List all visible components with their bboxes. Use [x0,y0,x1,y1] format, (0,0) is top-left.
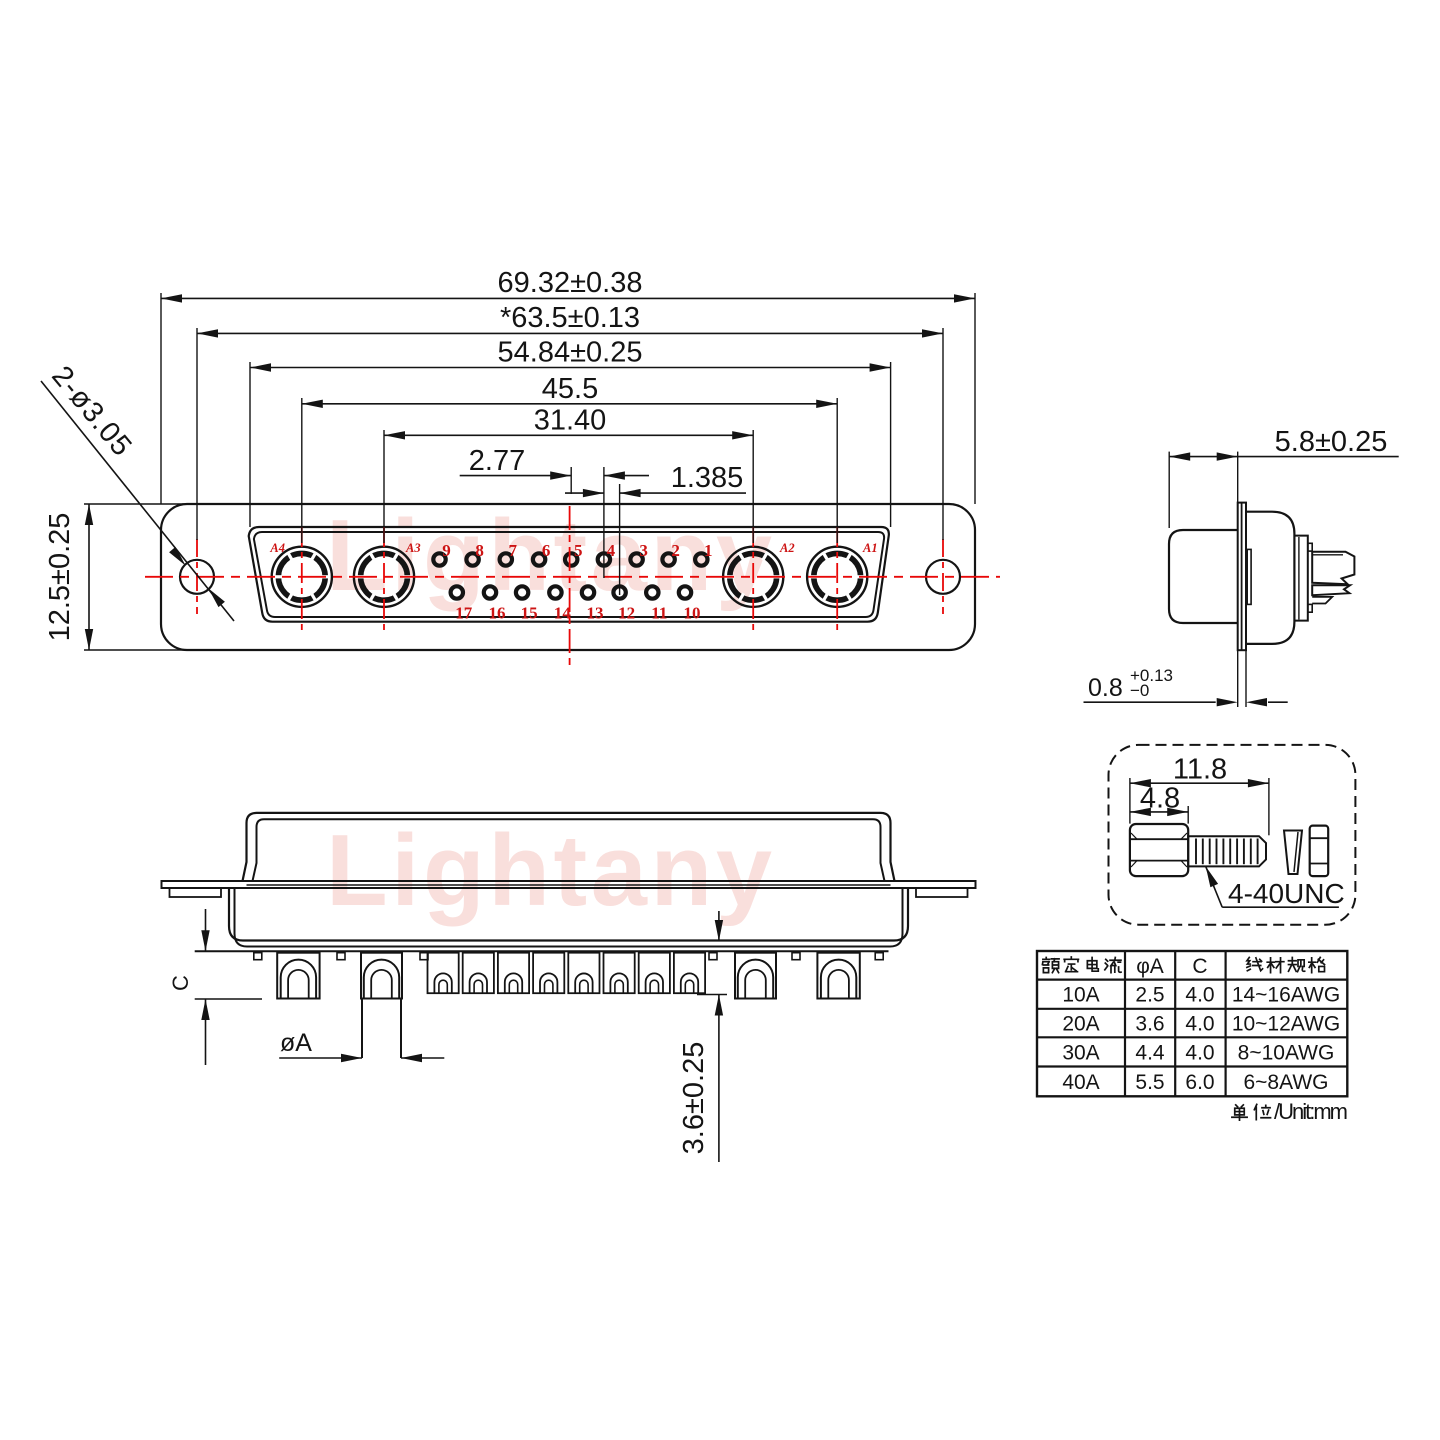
svg-text:4.0: 4.0 [1185,1013,1214,1036]
svg-text:Lightany: Lightany [326,815,772,927]
svg-text:6~8AWG: 6~8AWG [1243,1071,1328,1094]
svg-text:*63.5±0.13: *63.5±0.13 [500,302,640,334]
svg-text:3.6: 3.6 [1135,1013,1164,1036]
svg-text:2: 2 [671,541,680,560]
svg-text:6: 6 [542,541,551,560]
svg-text:A4: A4 [269,541,285,555]
svg-text:12.5±0.25: 12.5±0.25 [44,513,76,642]
svg-text:A2: A2 [779,541,795,555]
svg-text:20A: 20A [1062,1013,1099,1036]
svg-text:A3: A3 [405,541,421,555]
svg-text:4: 4 [607,541,616,560]
svg-text:9: 9 [442,541,451,560]
svg-text:C: C [1192,955,1207,978]
svg-text:54.84±0.25: 54.84±0.25 [498,337,643,369]
svg-text:A1: A1 [862,541,878,555]
svg-text:/Unit:mm: /Unit:mm [1274,1099,1348,1124]
svg-text:2.5: 2.5 [1135,984,1164,1007]
svg-text:69.32±0.38: 69.32±0.38 [498,267,643,299]
svg-text:30A: 30A [1062,1042,1099,1065]
svg-text:15: 15 [521,604,538,623]
svg-text:16: 16 [489,604,506,623]
svg-text:0.8: 0.8 [1088,674,1123,702]
svg-text:12: 12 [618,604,635,623]
svg-text:13: 13 [587,604,604,623]
svg-text:6.0: 6.0 [1185,1071,1214,1094]
svg-text:40A: 40A [1062,1071,1099,1094]
svg-text:5.8±0.25: 5.8±0.25 [1275,426,1388,458]
svg-text:φA: φA [1136,955,1164,978]
svg-text:4.0: 4.0 [1185,984,1214,1007]
svg-text:10~12AWG: 10~12AWG [1232,1013,1340,1036]
svg-text:10: 10 [684,604,701,623]
svg-text:8~10AWG: 8~10AWG [1238,1042,1335,1065]
svg-text:3.6±0.25: 3.6±0.25 [678,1042,710,1155]
svg-text:11.8: 11.8 [1173,754,1227,786]
svg-text:3: 3 [639,541,648,560]
svg-text:4.0: 4.0 [1185,1042,1214,1065]
svg-text:øA: øA [280,1029,312,1057]
svg-text:31.40: 31.40 [534,404,607,436]
svg-text:7: 7 [509,541,518,560]
svg-text:17: 17 [455,604,473,623]
svg-text:45.5: 45.5 [542,373,598,405]
svg-text:5: 5 [574,541,583,560]
svg-text:2.77: 2.77 [469,445,525,477]
svg-text:14~16AWG: 14~16AWG [1232,984,1340,1007]
svg-text:8: 8 [475,541,484,560]
svg-text:4.8: 4.8 [1140,783,1180,815]
svg-text:5.5: 5.5 [1135,1071,1164,1094]
svg-text:C: C [168,975,193,991]
svg-text:4.4: 4.4 [1135,1042,1165,1065]
svg-text:1: 1 [704,541,713,560]
svg-text:10A: 10A [1062,984,1099,1007]
svg-text:4-40UNC: 4-40UNC [1228,878,1345,909]
svg-text:1.385: 1.385 [671,462,744,494]
svg-text:−0: −0 [1130,681,1149,700]
svg-text:11: 11 [651,604,667,623]
